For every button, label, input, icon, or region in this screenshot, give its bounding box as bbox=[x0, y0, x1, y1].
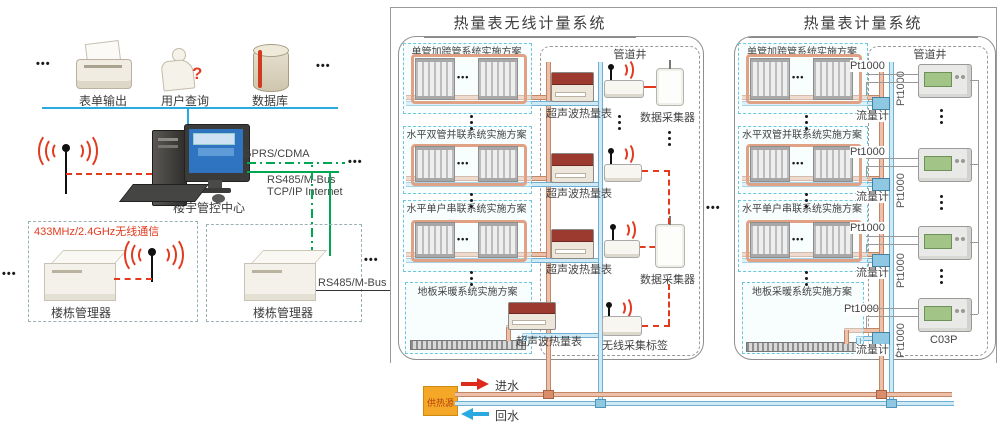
tcpip-label: TCP/IP Internet bbox=[267, 186, 343, 198]
antenna-icon bbox=[124, 236, 180, 280]
antenna-icon bbox=[598, 56, 632, 80]
building-manager-device bbox=[244, 250, 324, 302]
ultrasonic-meter-icon bbox=[551, 153, 594, 183]
ellipsis: ••• bbox=[792, 234, 804, 244]
building-manager-label: 楼栋管理器 bbox=[244, 304, 322, 321]
ultrasonic-meter-label: 超声波热量表 bbox=[546, 108, 612, 120]
mbus-trunk bbox=[978, 80, 979, 314]
ellipsis: ••• bbox=[457, 158, 469, 168]
control-center-computer-icon bbox=[120, 118, 260, 200]
wireless-transmitter-icon bbox=[604, 240, 640, 258]
radiator-icon bbox=[813, 58, 853, 100]
radiator-icon bbox=[415, 222, 455, 258]
vertical-dots bbox=[803, 190, 809, 211]
return-riser-pipe bbox=[889, 62, 894, 404]
pipe-tee bbox=[595, 399, 606, 408]
vertical-dots bbox=[938, 106, 944, 127]
scheme-label: 地板采暖系统实施方案 bbox=[743, 287, 861, 298]
rs485-line bbox=[247, 171, 339, 173]
vertical-dots bbox=[803, 112, 809, 133]
pipe-tee bbox=[543, 390, 554, 399]
pt1000-label: Pt1000 bbox=[850, 222, 885, 234]
radiator-icon bbox=[750, 146, 790, 182]
antenna-icon bbox=[38, 132, 94, 176]
heat-calculator-icon bbox=[918, 64, 972, 98]
floor-supply-pipe bbox=[844, 330, 849, 344]
user-query-icon: ? bbox=[158, 46, 210, 92]
flow-meter-icon bbox=[872, 97, 890, 110]
scheme-label: 水平单户串联系统实施方案 bbox=[404, 204, 529, 215]
scheme-label: 水平双管并联系统实施方案 bbox=[404, 130, 529, 141]
vertical-dots bbox=[803, 268, 809, 289]
radiator-icon bbox=[478, 146, 518, 182]
rf-link bbox=[668, 170, 670, 224]
radiator-icon bbox=[415, 58, 455, 100]
radiator-icon bbox=[813, 222, 853, 258]
antenna-icon bbox=[600, 216, 634, 240]
heat-calculator-icon bbox=[918, 298, 972, 332]
rs485-label: RS485/M-Bus bbox=[267, 174, 335, 186]
ellipsis-gprs: ••• bbox=[348, 156, 363, 168]
radiator-icon bbox=[478, 222, 518, 258]
return-main-pipe bbox=[455, 401, 954, 406]
ultrasonic-meter-icon bbox=[551, 229, 594, 259]
pt1000-label: Pt1000 bbox=[844, 303, 879, 315]
pipe-well-label: 管道井 bbox=[898, 49, 962, 61]
supply-arrow-icon bbox=[461, 382, 477, 386]
radiator-icon bbox=[750, 58, 790, 100]
mbus-stub bbox=[970, 164, 978, 165]
sensor-wire bbox=[866, 244, 918, 245]
sensor-wire bbox=[866, 316, 918, 317]
sensor-wire bbox=[866, 308, 918, 309]
pt1000-label: Pt1000 bbox=[850, 60, 885, 72]
ellipsis-top-right: ••• bbox=[316, 60, 331, 72]
database-icon bbox=[252, 42, 290, 92]
flow-meter-label: 流量计 bbox=[856, 344, 889, 356]
sensor-wire bbox=[866, 74, 918, 75]
sensor-wire bbox=[866, 158, 918, 159]
sensor-wire bbox=[866, 244, 867, 253]
diagram-canvas: ••• ••• ? 表单输出 用户查询 数据库 楼宇管控中心 bbox=[0, 0, 1000, 436]
floor-heating-icon bbox=[746, 342, 860, 352]
heat-calculator-icon bbox=[918, 148, 972, 182]
wired-system-title: 热量表计量系统 bbox=[748, 12, 978, 38]
return-arrow-head bbox=[461, 408, 473, 420]
gprs-line bbox=[247, 162, 345, 164]
heat-calculator-icon bbox=[918, 226, 972, 260]
pipe-tee bbox=[876, 390, 887, 399]
radiator-icon bbox=[813, 146, 853, 182]
rf-link bbox=[640, 246, 655, 248]
pipe-tee bbox=[886, 399, 897, 408]
control-center-label: 楼宇管控中心 bbox=[168, 199, 250, 216]
rf-link bbox=[668, 284, 670, 325]
wireless-transmitter-icon bbox=[604, 164, 642, 182]
return-water-label: 回水 bbox=[495, 407, 519, 424]
gprs-cdma-label: GPRS/CDMA bbox=[243, 148, 310, 160]
wireless-system-title: 热量表无线计量系统 bbox=[424, 12, 636, 38]
pt1000-label-vertical: Pt1000 bbox=[896, 66, 907, 106]
sensor-wire bbox=[866, 316, 867, 329]
mbus-stub bbox=[970, 80, 978, 81]
scheme-label: 水平单户串联系统实施方案 bbox=[739, 204, 865, 215]
sensor-wire bbox=[866, 166, 918, 167]
flow-meter-icon bbox=[872, 254, 890, 267]
ultrasonic-meter-label: 超声波热量表 bbox=[546, 188, 612, 200]
floor-heating-icon bbox=[410, 340, 526, 350]
vertical-dots bbox=[468, 190, 474, 211]
ellipsis-far-left: ••• bbox=[2, 268, 17, 280]
ellipsis-between-systems: ••• bbox=[706, 202, 721, 214]
pt1000-label-vertical: Pt1000 bbox=[896, 168, 907, 208]
mbus-stub bbox=[970, 314, 978, 315]
sensor-wire bbox=[866, 236, 918, 237]
data-collector-label: 数据采集器 bbox=[640, 112, 695, 124]
radiator-icon bbox=[415, 146, 455, 182]
lan-bus-line bbox=[42, 107, 338, 109]
wireless-transmitter-icon bbox=[604, 80, 644, 98]
heat-source-label: 供热源 bbox=[424, 396, 457, 409]
ultrasonic-meter-label: 超声波热量表 bbox=[516, 336, 582, 348]
rf-link bbox=[642, 325, 670, 327]
wireless-tag-icon bbox=[602, 316, 642, 336]
wireless-link-line bbox=[114, 278, 152, 280]
radiator-icon bbox=[750, 222, 790, 258]
rs485-bus-line bbox=[316, 290, 390, 291]
sensor-wire bbox=[866, 166, 867, 177]
antenna-icon bbox=[596, 294, 630, 318]
sensor-wire bbox=[866, 82, 918, 83]
vertical-dots bbox=[938, 266, 944, 287]
pt1000-label-vertical: Pt1000 bbox=[896, 248, 907, 288]
ellipsis: ••• bbox=[457, 72, 469, 82]
heat-source-box: 供热源 bbox=[423, 386, 458, 416]
flow-meter-label: 流量计 bbox=[856, 110, 889, 122]
vertical-dots bbox=[616, 112, 622, 133]
wireless-tag-label: 无线采集标签 bbox=[602, 340, 668, 352]
supply-arrow-head bbox=[477, 378, 489, 390]
vertical-dots bbox=[468, 112, 474, 133]
sensor-wire bbox=[866, 82, 867, 96]
building-manager-label: 楼栋管理器 bbox=[42, 304, 120, 321]
flow-meter-label: 流量计 bbox=[856, 191, 889, 203]
flow-meter-icon bbox=[872, 178, 890, 191]
vertical-dots bbox=[938, 192, 944, 213]
pt1000-label-vertical: Pt1000 bbox=[896, 318, 907, 358]
calculator-model-label: C03P bbox=[930, 334, 958, 346]
ultrasonic-meter-icon bbox=[551, 72, 594, 102]
ellipsis-rs485: ••• bbox=[364, 254, 379, 266]
rs485-bus-label: RS485/M-Bus bbox=[316, 277, 388, 289]
wireless-link-line bbox=[66, 173, 152, 175]
printer-icon bbox=[74, 40, 132, 90]
building-manager-device bbox=[44, 250, 124, 302]
question-mark: ? bbox=[192, 64, 202, 84]
antenna-icon bbox=[598, 140, 632, 164]
scheme-label: 水平双管并联系统实施方案 bbox=[739, 130, 865, 141]
radiator-icon bbox=[478, 58, 518, 100]
pt1000-label: Pt1000 bbox=[850, 146, 885, 158]
data-collector-icon bbox=[656, 68, 684, 106]
ellipsis: ••• bbox=[792, 72, 804, 82]
vertical-dots bbox=[666, 128, 672, 149]
ultrasonic-meter-label: 超声波热量表 bbox=[546, 264, 612, 276]
vertical-dots bbox=[468, 268, 474, 289]
rf-link bbox=[644, 86, 656, 88]
ellipsis-top-left: ••• bbox=[36, 58, 51, 70]
ellipsis: ••• bbox=[457, 234, 469, 244]
return-arrow-icon bbox=[473, 412, 489, 416]
mbus-stub bbox=[970, 242, 978, 243]
rf-link bbox=[642, 170, 670, 172]
flow-meter-label: 流量计 bbox=[856, 267, 889, 279]
ellipsis: ••• bbox=[792, 158, 804, 168]
ultrasonic-meter-icon bbox=[508, 302, 556, 330]
data-collector-icon bbox=[655, 224, 685, 268]
